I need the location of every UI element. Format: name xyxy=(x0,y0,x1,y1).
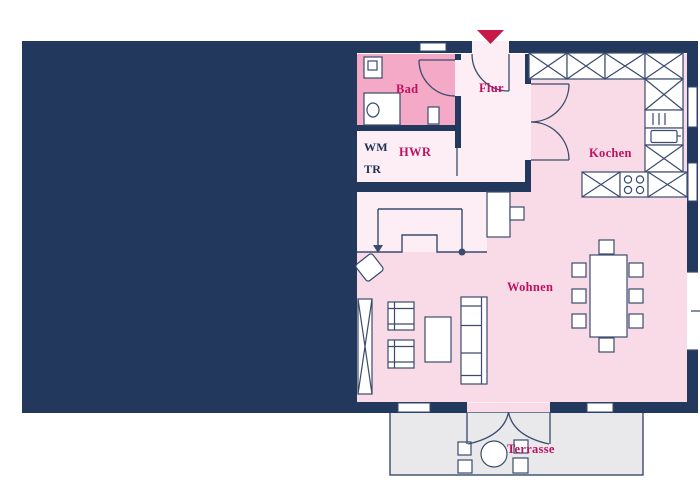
appliance-label-tr: TR xyxy=(364,162,381,176)
window-bottom-1 xyxy=(398,403,430,412)
hwr-door-gap xyxy=(455,148,461,182)
window-right-2 xyxy=(688,163,697,201)
kitchen-cabinet xyxy=(529,53,567,79)
flur-floor xyxy=(461,54,525,182)
tall-window-right xyxy=(687,272,700,350)
terrace-door-opening xyxy=(467,403,550,413)
wall-bad-hwr xyxy=(357,125,461,131)
terrace-chair xyxy=(513,458,528,473)
top-wall-left xyxy=(357,41,472,53)
stove-cooktop xyxy=(620,172,648,197)
armchair xyxy=(388,340,414,368)
kitchen-cabinet xyxy=(582,172,620,197)
built-in-cabinet xyxy=(358,299,372,394)
shower xyxy=(364,93,400,125)
dining-chair xyxy=(629,263,643,277)
room-label-hwr: HWR xyxy=(399,145,432,159)
kitchen-cabinet xyxy=(605,53,645,79)
room-label-flur: Flur xyxy=(479,81,504,95)
kitchen-sink xyxy=(645,128,683,145)
coffee-table xyxy=(425,317,451,362)
dining-table xyxy=(590,255,627,337)
kitchen-cabinet xyxy=(645,79,683,110)
wall-flur-living xyxy=(357,182,531,192)
armchair xyxy=(388,302,414,330)
dining-chair xyxy=(629,289,643,303)
kitchen-cabinet xyxy=(645,145,683,172)
side-shelf xyxy=(510,207,524,220)
window-bottom-2 xyxy=(587,403,613,412)
bath-sink xyxy=(428,107,439,124)
tall-window-frame xyxy=(687,272,700,350)
floor-plan: Bad Flur HWR Kochen Wohnen Terrasse WM T… xyxy=(0,0,700,500)
adjacent-unit-block xyxy=(22,41,357,413)
terrace-table xyxy=(481,441,507,467)
bad-door-gap xyxy=(455,60,461,96)
sofa xyxy=(461,297,487,384)
dining-chair xyxy=(572,263,586,277)
wall-flur-left xyxy=(455,96,461,148)
right-wall-upper xyxy=(687,41,698,272)
room-label-bad: Bad xyxy=(396,82,418,96)
kitchen-cabinet xyxy=(648,172,687,197)
dining-chair xyxy=(572,289,586,303)
bottom-wall-right xyxy=(550,402,698,413)
direction-start-dot xyxy=(459,249,466,256)
dining-chair xyxy=(572,314,586,328)
dishwasher xyxy=(645,110,683,128)
terrace-chair xyxy=(458,460,472,473)
kitchen-cabinet xyxy=(645,53,683,79)
dining-chair xyxy=(599,338,614,352)
wall-bad-flur-stub xyxy=(455,54,461,60)
room-label-kochen: Kochen xyxy=(589,146,632,160)
window-top xyxy=(420,43,446,51)
kitchen-door-gap xyxy=(525,84,531,160)
room-label-terrasse: Terrasse xyxy=(507,442,555,456)
floor-plan-page: Bad Flur HWR Kochen Wohnen Terrasse WM T… xyxy=(0,0,700,500)
entry-platform-floor xyxy=(357,192,487,252)
dining-chair xyxy=(599,240,614,254)
room-label-wohnen: Wohnen xyxy=(507,280,553,294)
kitchen-cabinet xyxy=(567,53,605,79)
dining-chair xyxy=(629,314,643,328)
window-right-1 xyxy=(688,87,697,127)
toilet xyxy=(364,57,382,78)
wall-flur-kitchen-bottom xyxy=(525,160,531,182)
top-wall-right xyxy=(509,41,698,53)
appliance-label-wm: WM xyxy=(364,140,388,154)
